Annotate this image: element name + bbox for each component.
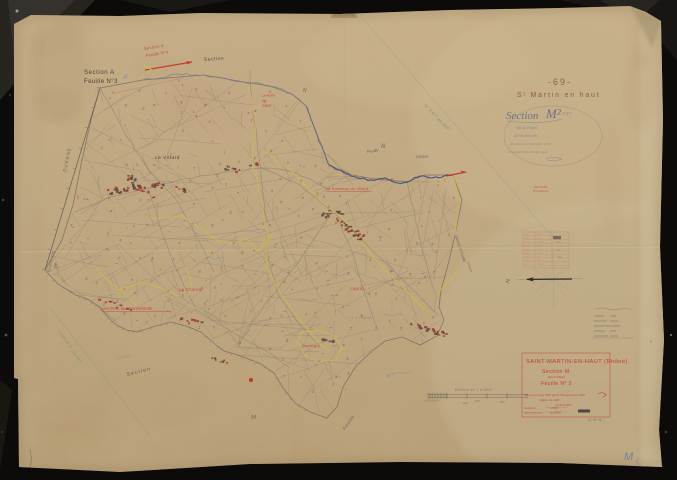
svg-text:300: 300 [500,400,505,404]
svg-text:Sᵗ Martin en haut: Sᵗ Martin en haut [517,92,601,99]
svg-text:M²: M² [545,106,562,121]
svg-text:N°2 delivree: N°2 delivree [533,189,549,193]
svg-text:Guin: Guin [95,87,102,91]
svg-text:SAINT-MARTIN-EN-HAUT (Rhône): SAINT-MARTIN-EN-HAUT (Rhône) [526,359,628,365]
svg-text:Unique: Unique [416,153,430,159]
svg-text:au 20000: au 20000 [550,411,561,415]
svg-text:Clavegry: Clavegry [302,343,320,348]
svg-text:M: M [251,415,256,421]
svg-text:Reduction: Reduction [524,406,536,410]
svg-text:de 300 parcelles: de 300 parcelles [514,134,538,138]
svg-text:1/2500: 1/2500 [550,406,558,410]
svg-text:dite du Villard: dite du Villard [548,375,565,379]
svg-text:L'Orgere: L'Orgere [356,315,372,320]
svg-text:1ᵉ fᵉᵉ: 1ᵉ fᵉᵉ [562,112,572,117]
svg-text:200: 200 [475,399,480,403]
svg-text:Terminee le 7 Novembre 1818: Terminee le 7 Novembre 1818 [510,142,551,146]
svg-text:Feuille N° 2: Feuille N° 2 [541,381,572,387]
svg-text:Edition de 1937: Edition de 1937 [540,398,560,402]
svg-text:Les Pres des Bonnefonds: Les Pres des Bonnefonds [102,306,152,311]
svg-text:le 30.6.1937: le 30.6.1937 [556,403,572,407]
svg-text:du: du [262,99,266,103]
svg-text:M: M [624,451,634,463]
svg-text:Villard: Villard [262,103,272,108]
svg-text:Section: Section [506,110,539,122]
svg-text:N: N [303,88,307,94]
svg-text:Le Villard: Le Villard [155,155,180,161]
svg-text:Agrandissement: Agrandissement [524,411,543,415]
svg-text:dite du Villard: dite du Villard [516,126,537,130]
svg-text:N: N [381,144,386,150]
svg-text:Echelle de 1 a 2500: Echelle de 1 a 2500 [455,388,493,392]
svg-text:A: A [122,74,128,81]
svg-text:Feuille N°3: Feuille N°3 [84,79,118,85]
svg-text:Mise a jour pour 1937 par M. P: Mise a jour pour 1937 par M. Piot geomet… [524,393,585,397]
svg-text:2: 2 [635,458,640,464]
svg-text:La Charnat: La Charnat [179,287,203,292]
svg-text:100: 100 [463,401,468,405]
svg-text:Section A: Section A [84,70,115,76]
svg-text:O M N °: O M N ° [588,417,606,422]
svg-text:-69-: -69- [548,77,572,87]
svg-text:E: E [214,286,216,290]
svg-text:le Geometre de l'Arrgt Guyon: le Geometre de l'Arrgt Guyon [508,150,549,154]
svg-text:Laprat: Laprat [350,286,365,291]
svg-text:- est: - est [330,344,338,348]
svg-text:Le Ruisseau du Villard: Le Ruisseau du Villard [326,187,368,191]
